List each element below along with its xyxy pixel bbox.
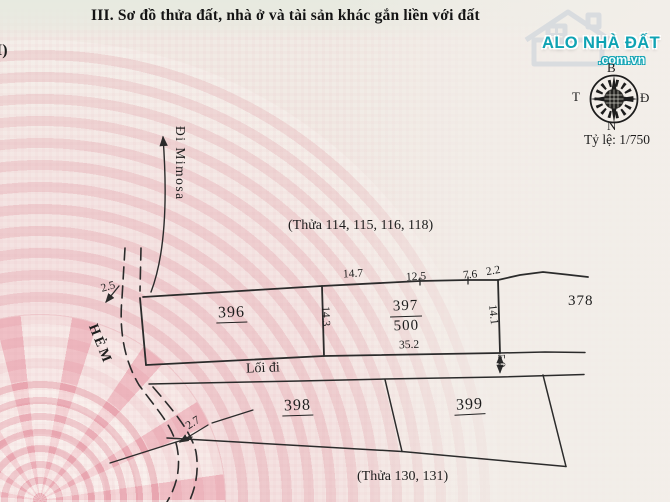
divider-398-399 xyxy=(385,380,402,452)
boundary-east-399 xyxy=(543,375,566,467)
plot-397-id: 397 xyxy=(390,297,422,317)
compass-north-label: B xyxy=(607,61,616,75)
plot-398-number: 398 xyxy=(282,396,314,415)
boundary-west-396 xyxy=(140,298,146,365)
watermark-logo: ALO NHÀ ĐẤT .com.vn xyxy=(518,4,670,70)
street-direction-label: Đi Mimosa xyxy=(172,126,187,201)
walkway-label: Lối đi xyxy=(246,360,280,377)
compass-west-label: T xyxy=(572,90,580,104)
dim-depth-left: 14.3 xyxy=(318,306,331,327)
alley-edge-west-dashed xyxy=(121,248,178,502)
plot-378-number: 378 xyxy=(568,293,594,310)
street-direction-arrow xyxy=(151,137,165,292)
left-edge-text: I) xyxy=(0,42,8,60)
land-certificate-photo: ALO NHÀ ĐẤT .com.vn III. Sơ đồ thửa đất,… xyxy=(0,0,670,502)
boundary-north-396-397 xyxy=(143,280,498,297)
plot-diagram-linework xyxy=(0,0,670,502)
dim-depth-right: 14.1 xyxy=(485,304,500,325)
plot-397-area: 500 xyxy=(387,317,426,335)
plot-397-number: 397 500 xyxy=(386,297,425,334)
section-title: III. Sơ đồ thửa đất, nhà ở và tài sản kh… xyxy=(91,7,480,24)
dim-path-width: 5.0 xyxy=(494,354,506,368)
alley-edge-east-dashed-top xyxy=(140,248,141,291)
boundary-south-398-399 xyxy=(167,438,566,467)
watermark-brand-text: ALO NHÀ ĐẤT xyxy=(542,34,670,53)
plot-396-number: 396 xyxy=(216,303,248,322)
dim-top-2: 12.5 xyxy=(406,270,427,284)
boundary-north-378 xyxy=(498,272,588,280)
dim-leader-alley-south xyxy=(212,410,253,423)
map-scale-label: Tỷ lệ: 1/750 xyxy=(584,133,650,148)
boundary-north-398-399 xyxy=(149,375,584,385)
dim-width-bottom: 35.2 xyxy=(399,339,420,352)
neighbor-plots-north-label: (Thửa 114, 115, 116, 118) xyxy=(288,218,433,233)
dim-top-3: 7.6 xyxy=(463,269,478,283)
path-edge-east-extension xyxy=(500,352,585,353)
dim-top-1: 14.7 xyxy=(343,267,364,281)
neighbor-plots-south-label: (Thửa 130, 131) xyxy=(357,469,448,484)
boundary-south-396-397 xyxy=(146,353,500,365)
dim-top-4: 2.2 xyxy=(485,264,501,279)
compass-east-label: Đ xyxy=(640,91,649,105)
watermark-domain-text: .com.vn xyxy=(598,53,645,67)
neighbor-boundary-southwest xyxy=(110,437,192,463)
plot-399-number: 399 xyxy=(454,395,486,414)
